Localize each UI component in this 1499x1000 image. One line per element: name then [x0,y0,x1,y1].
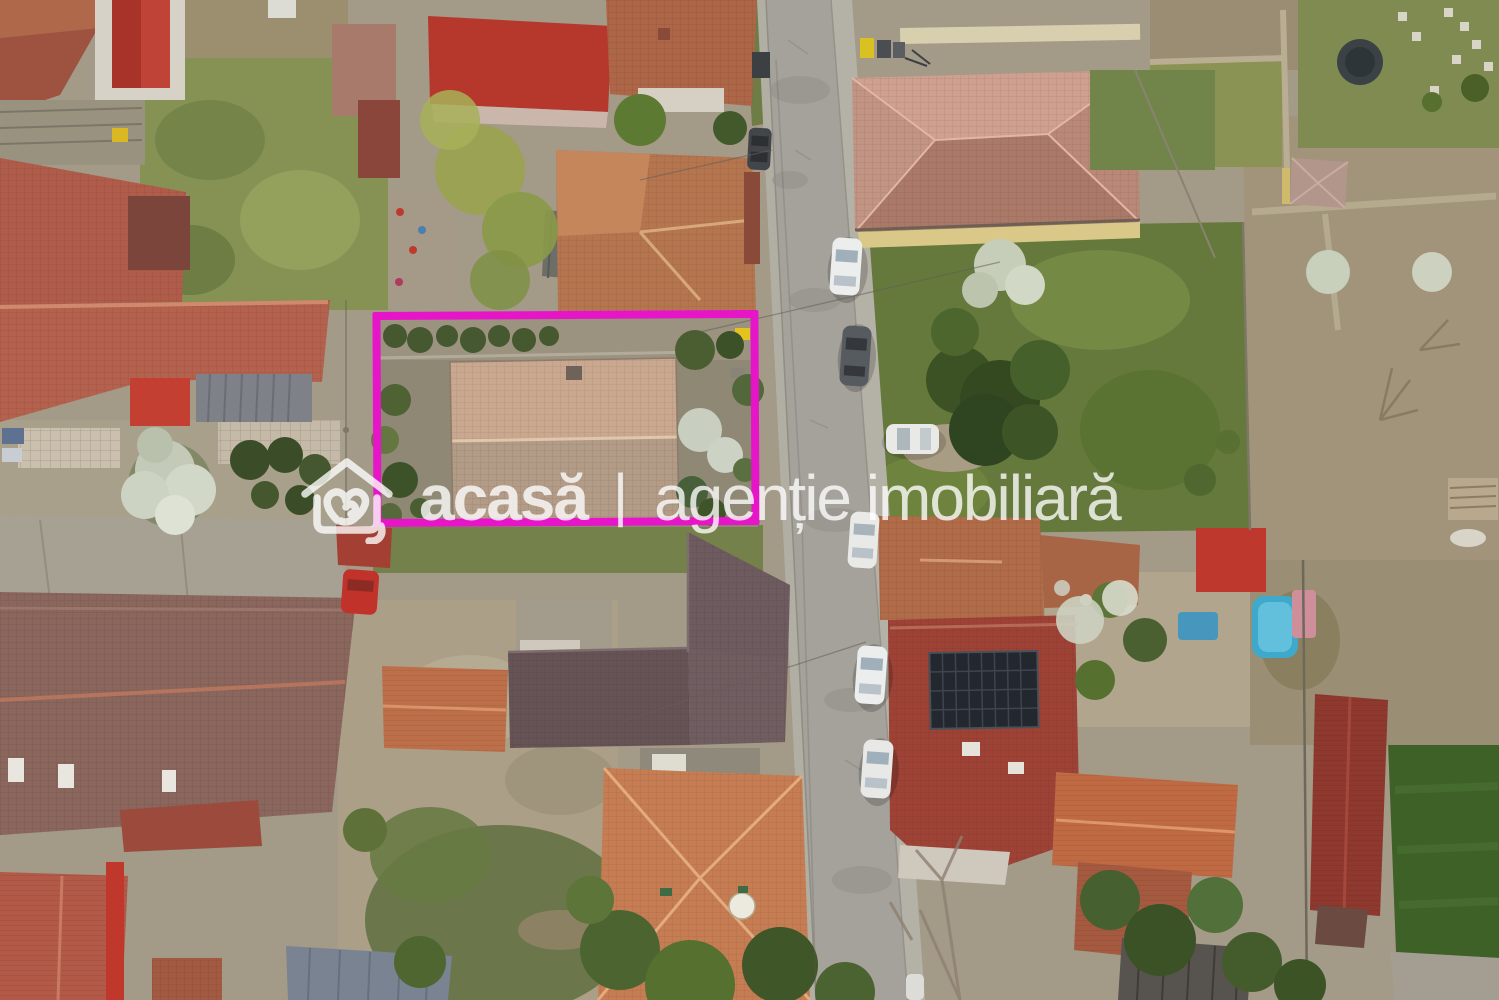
aerial-photo-stage: acasă | agenție imobiliară [0,0,1499,1000]
property-highlight-rectangle [372,310,759,527]
